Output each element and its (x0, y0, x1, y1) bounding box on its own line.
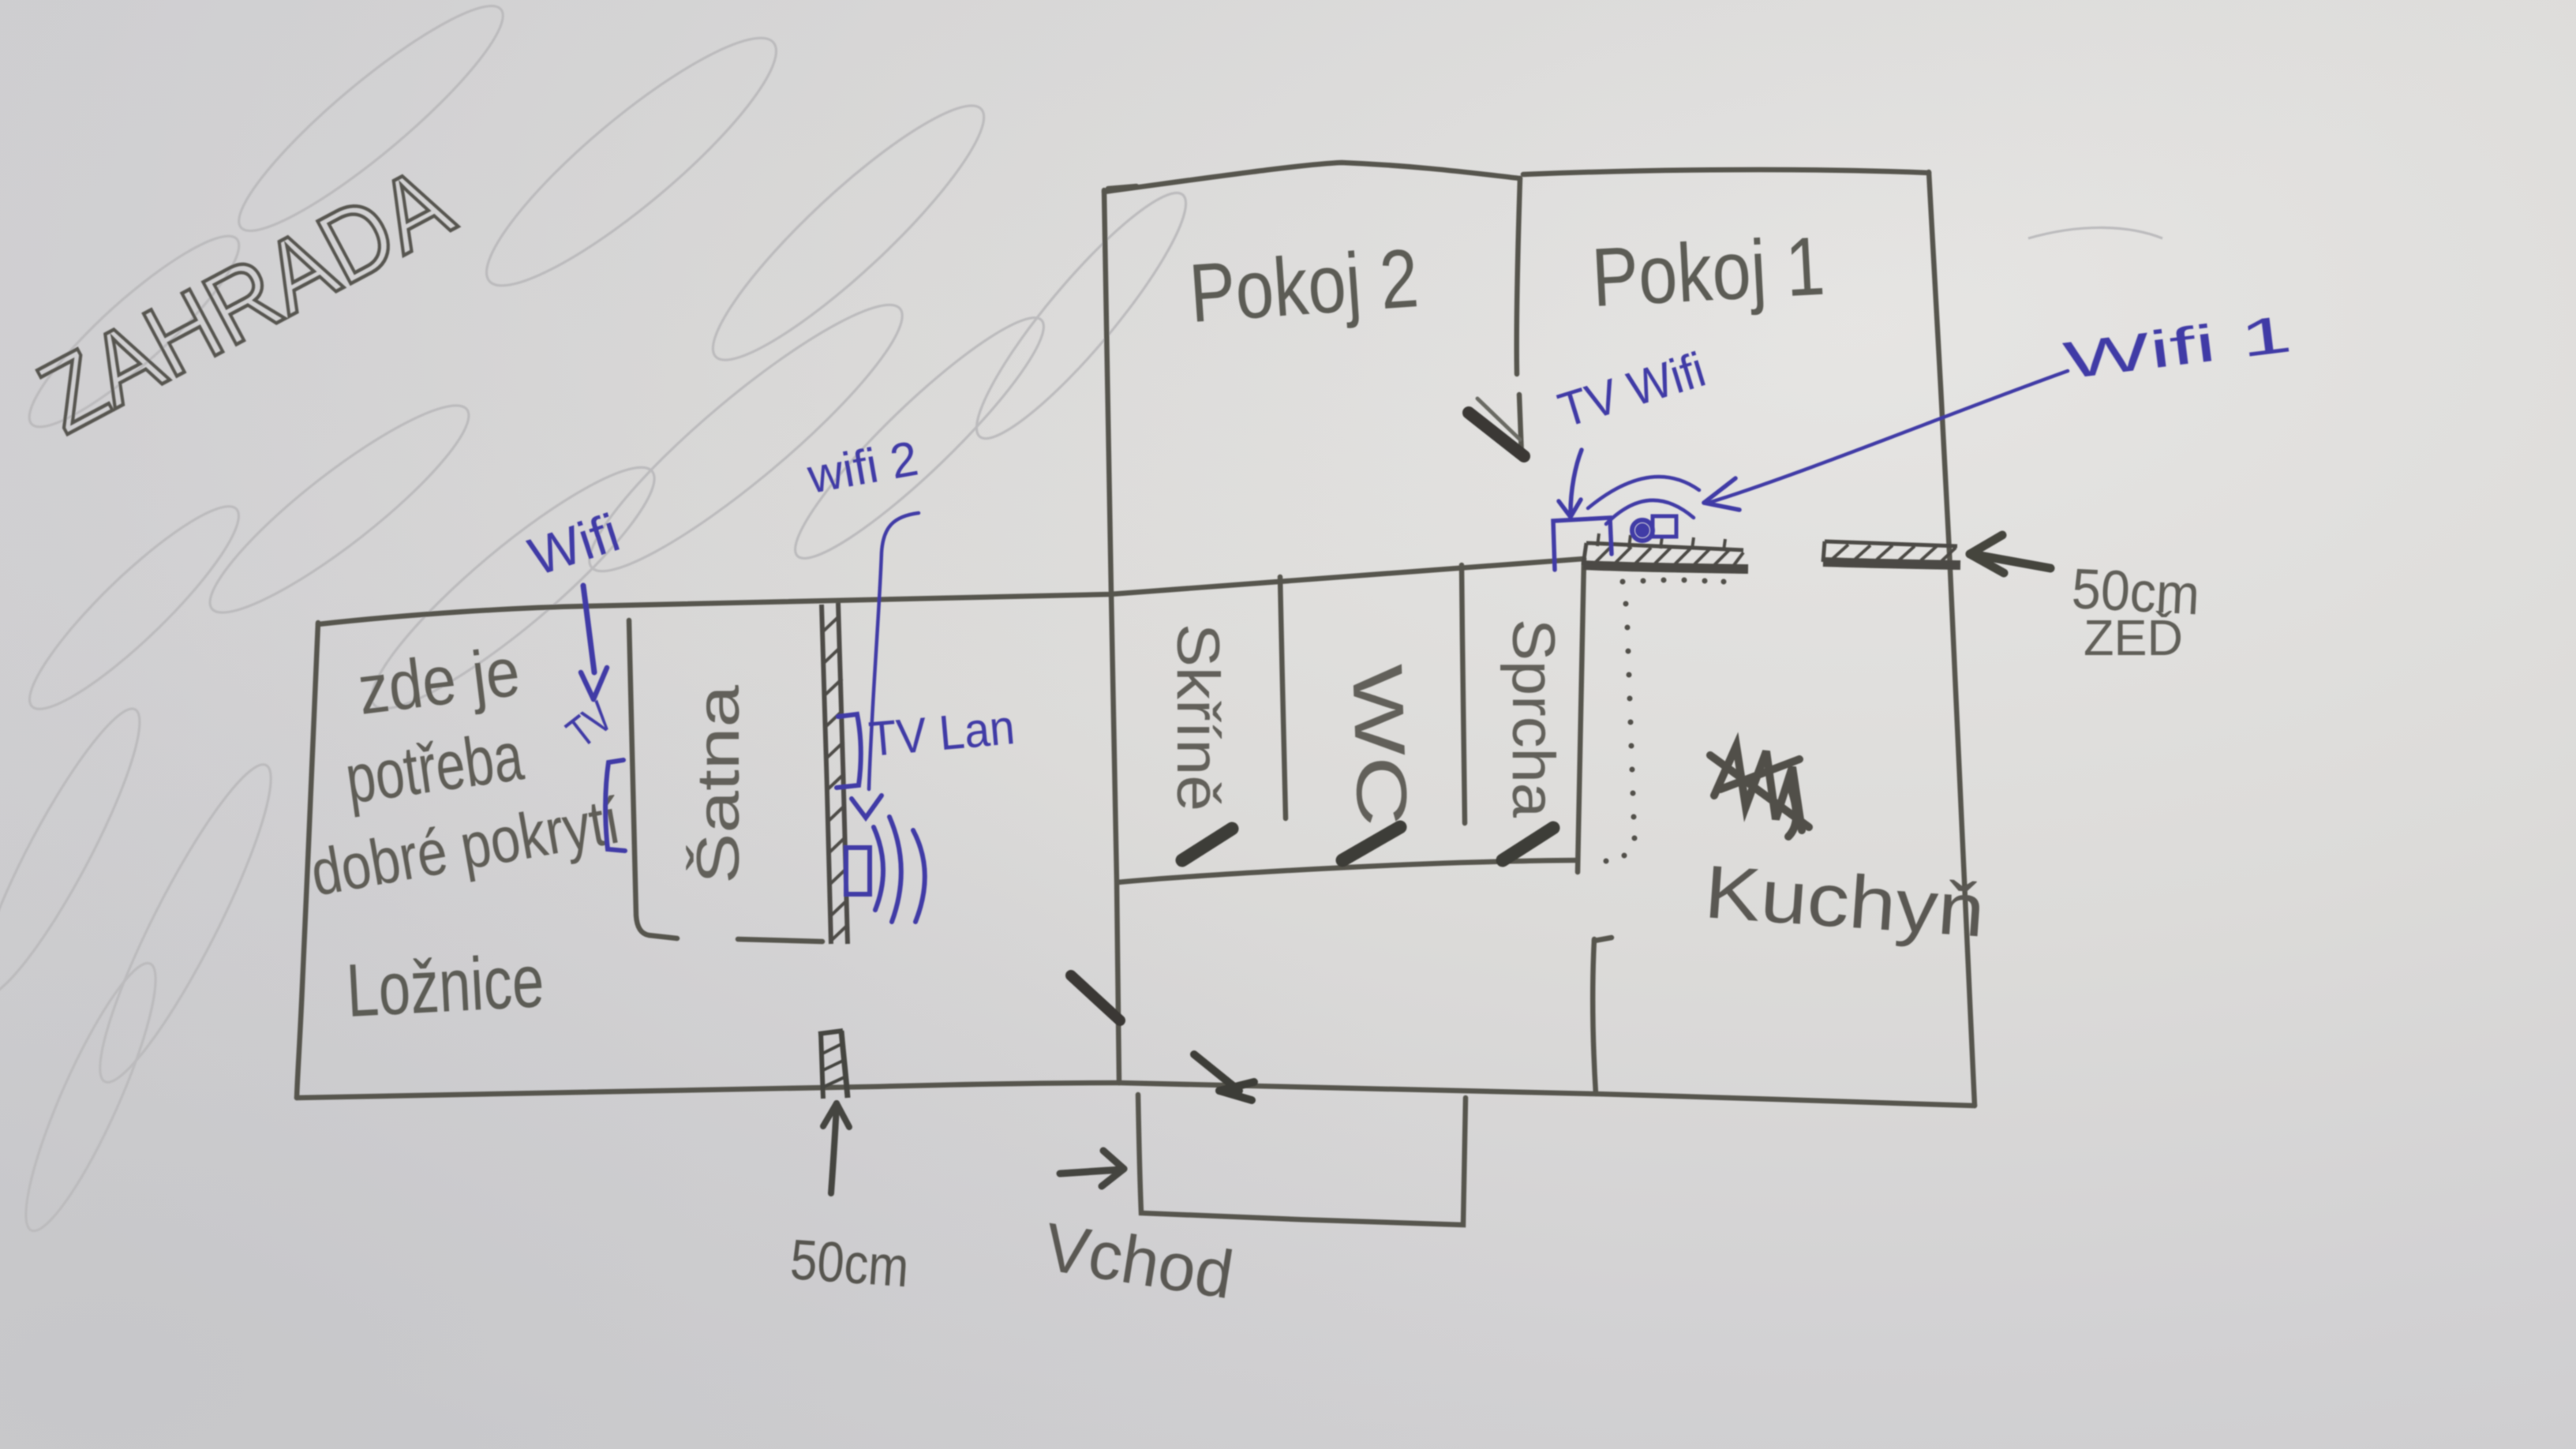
svg-text:Sprcha: Sprcha (1500, 619, 1567, 818)
svg-text:Šatna: Šatna (685, 684, 752, 884)
svg-text:ZEĎ: ZEĎ (2084, 609, 2183, 666)
svg-text:Ložnice: Ložnice (345, 939, 546, 1033)
svg-text:50cm: 50cm (788, 1228, 911, 1299)
svg-text:Pokoj 1: Pokoj 1 (1589, 220, 1827, 324)
svg-text:WC: WC (1337, 663, 1421, 827)
svg-text:Pokoj 2: Pokoj 2 (1186, 232, 1421, 340)
svg-text:Skříně: Skříně (1164, 623, 1231, 811)
